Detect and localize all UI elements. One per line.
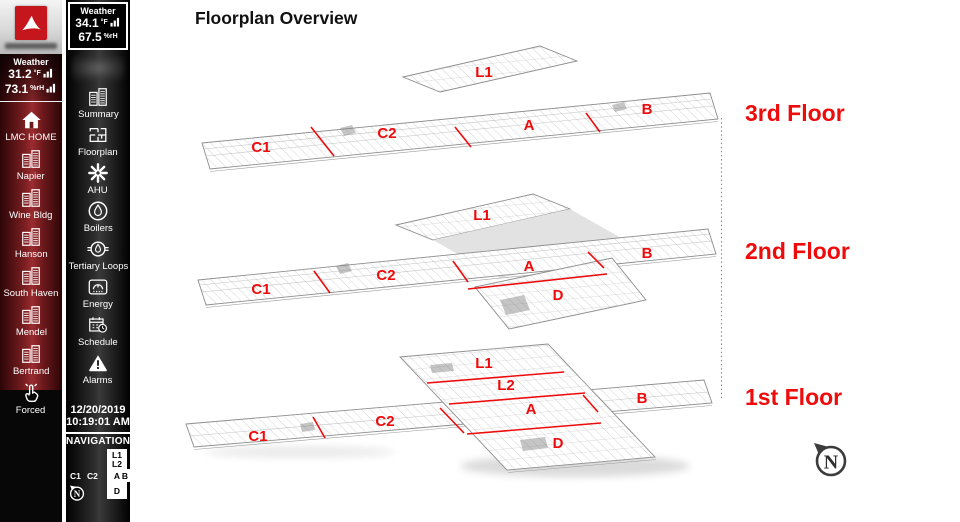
minimap-compass-icon: N [68,484,86,507]
sidebar-item-label: Energy [83,299,113,309]
calendar-clock-icon [87,314,109,336]
buildings-icon [20,265,42,287]
datetime-display: 12/20/2019 10:19:01 AM [66,404,130,434]
compass-n-letter: N [824,452,839,474]
sidebar-item-label: Forced [16,405,46,415]
floorplan-canvas: L1 C1 C2 A B 3rd Floor L1 C1 C2 A B D 2n… [0,0,960,522]
floor-2-plan[interactable]: L1 C1 C2 A B D [198,194,716,329]
sidebar-item-label: Floorplan [78,147,118,157]
floor2-section-c1-label: C1 [251,281,270,298]
campus-humidity-unit: %rH [30,85,44,93]
sidebar-item-napier[interactable]: Napier [0,148,62,182]
signal-bars-icon [46,82,57,93]
touch-icon [20,382,42,404]
sidebar-item-label: Napier [17,171,45,181]
buildings-icon [20,187,42,209]
buildings-icon [20,343,42,365]
sidebar-item-energy[interactable]: Energy [66,276,130,310]
campus-weather-title: Weather [3,57,59,67]
minimap-cell-l1[interactable]: L1 [107,450,127,460]
loops-icon [86,238,110,260]
floor-3-plan[interactable]: L1 C1 C2 A B [202,46,718,172]
navigation-minimap: L1 L2 C1 C2 A B D N [66,448,130,508]
buildings-icon [20,226,42,248]
campus-weather-panel: Weather 31.2 °F 73.1 %rH [0,54,62,102]
sidebar-item-alarms[interactable]: Alarms [66,352,130,386]
building-weather-panel: Weather 34.1 °F 67.5 %rH [68,2,128,50]
floor2-section-a-label: A [524,258,535,275]
meter-icon [87,276,109,298]
floor3-section-c2-label: C2 [377,125,396,142]
sidebar-item-forced[interactable]: Forced [0,382,62,416]
floor1-section-a-label: A [526,401,537,418]
building-weather-title: Weather [72,6,124,16]
sidebar-item-label: Tertiary Loops [68,261,128,271]
sidebar-item-lmc-home[interactable]: LMC HOME [0,109,62,143]
floor3-section-a-label: A [524,117,535,134]
sidebar-item-label: LMC HOME [5,132,56,142]
floor-1-plan[interactable]: L1 L2 C1 C2 A B D [186,344,712,477]
campus-sidebar: Weather 31.2 °F 73.1 %rH LMC HOME Nap [0,0,62,522]
sidebar-item-label: Bertrand [13,366,49,376]
minimap-cell-c2[interactable]: C2 [87,471,98,481]
building-temp-value: 34.1 [75,17,98,31]
building-humidity-value: 67.5 [78,31,101,45]
minimap-cell-b[interactable]: B [120,471,130,481]
minimap-cell-d[interactable]: D [107,486,127,496]
flame-icon [87,200,109,222]
floor2-section-d-label: D [553,287,564,304]
floor3-section-c1-label: C1 [251,139,270,156]
sidebar-item-mendel[interactable]: Mendel [0,304,62,338]
floor1-section-l2-label: L2 [497,377,515,394]
sidebar-item-boilers[interactable]: Boilers [66,200,130,234]
compass-icon: N [814,443,845,475]
sidebar-item-label: Wine Bldg [9,210,52,220]
home-icon [20,109,43,131]
navigation-title: NAVIGATION [66,434,130,448]
sidebar-item-tertiary-loops[interactable]: Tertiary Loops [66,238,130,272]
campus-temp-unit: °F [34,70,41,78]
minimap-cell-l2[interactable]: L2 [107,459,127,469]
sidebar-item-ahu[interactable]: AHU [66,162,130,196]
page-title: Floorplan Overview [195,8,357,29]
sidebar-item-wine-bldg[interactable]: Wine Bldg [0,187,62,221]
signal-bars-icon [110,16,121,27]
sidebar-item-label: AHU [88,185,108,195]
sidebar-item-label: Summary [78,109,119,119]
sidebar-item-label: Schedule [78,337,118,347]
sidebar-item-label: Boilers [83,223,112,233]
sidebar-item-label: Mendel [15,327,46,337]
time-value: 10:19:01 AM [66,416,130,428]
building-temp-unit: °F [101,19,108,27]
sidebar-item-summary[interactable]: Summary [66,86,130,120]
signal-bars-icon [43,67,54,78]
campus-temp-value: 31.2 [8,68,31,82]
buildings-icon [20,304,42,326]
floor1-section-c2-label: C2 [375,413,394,430]
lmc-logo [0,0,62,54]
floor1-section-b-label: B [637,390,648,407]
minimap-compass-letter: N [74,489,81,499]
floor-3-title: 3rd Floor [745,100,845,126]
logo-swoosh-icon [18,10,44,36]
sidebar-item-label: Hanson [15,249,48,259]
sidebar-item-bertrand[interactable]: Bertrand [0,343,62,377]
floor1-section-d-label: D [553,435,564,452]
sidebar-item-south-haven[interactable]: South Haven [0,265,62,299]
floor1-section-c1-label: C1 [248,428,267,445]
floor2-section-c2-label: C2 [376,267,395,284]
campus-humidity-value: 73.1 [5,83,28,97]
minimap-cell-c1[interactable]: C1 [70,471,81,481]
date-value: 12/20/2019 [66,404,130,416]
lmc-logo-wordmark [5,43,57,49]
fan-icon [87,162,109,184]
building-sidebar: Weather 34.1 °F 67.5 %rH Summary Floorpl… [66,0,130,522]
sidebar-item-schedule[interactable]: Schedule [66,314,130,348]
floor2-section-b-label: B [642,245,653,262]
lmc-logo-mark [15,6,47,40]
sidebar-item-floorplan[interactable]: Floorplan [66,124,130,158]
floor2-section-l1-label: L1 [473,207,491,224]
building-logo [72,56,124,80]
floor-1-title: 1st Floor [745,384,842,410]
buildings-icon [87,86,109,108]
floor-2-title: 2nd Floor [745,238,850,264]
floorplan-icon [87,124,109,146]
warning-icon [87,352,109,374]
floor3-section-b-label: B [642,101,653,118]
sidebar-item-hanson[interactable]: Hanson [0,226,62,260]
floor3-section-l1-label: L1 [475,64,493,81]
sidebar-item-label: South Haven [4,288,59,298]
buildings-icon [20,148,42,170]
building-humidity-unit: %rH [104,33,118,41]
campus-menu-region: Weather 31.2 °F 73.1 %rH LMC HOME Nap [0,54,62,390]
floor1-section-l1-label: L1 [475,355,493,372]
sidebar-item-label: Alarms [83,375,113,385]
